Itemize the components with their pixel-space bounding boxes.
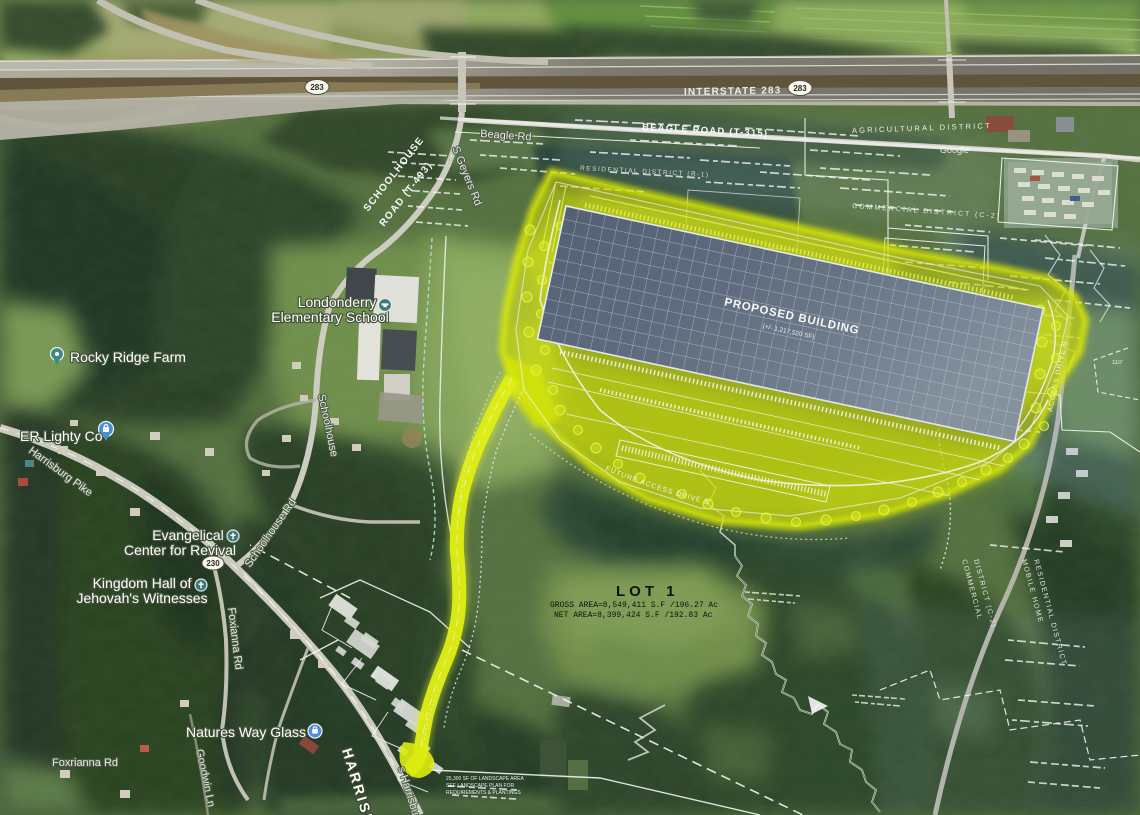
svg-text:REQUIREMENTS & PLANTINGS: REQUIREMENTS & PLANTINGS <box>446 790 521 796</box>
svg-text:Center for Revival: Center for Revival <box>124 542 236 558</box>
svg-text:230: 230 <box>206 559 220 568</box>
svg-text:Rocky Ridge Farm: Rocky Ridge Farm <box>70 349 186 365</box>
svg-text:Londonderry: Londonderry <box>298 294 377 310</box>
svg-text:INTERSTATE 283: INTERSTATE 283 <box>684 85 782 98</box>
svg-text:GROSS AREA=8,549,411 S.F /196.: GROSS AREA=8,549,411 S.F /196.27 Ac <box>550 601 718 610</box>
svg-text:Elementary School: Elementary School <box>271 309 389 325</box>
svg-text:SEE LANDSCAPE PLAN FOR: SEE LANDSCAPE PLAN FOR <box>446 783 514 789</box>
svg-text:Natures Way Glass: Natures Way Glass <box>186 724 306 740</box>
svg-text:LOT 1: LOT 1 <box>616 583 679 600</box>
svg-text:283: 283 <box>310 83 324 92</box>
svg-text:Kingdom Hall of: Kingdom Hall of <box>93 575 192 591</box>
svg-text:Evangelical: Evangelical <box>152 527 224 543</box>
svg-text:Jehovah's Witnesses: Jehovah's Witnesses <box>76 590 207 606</box>
svg-text:NET AREA=8,399,424 S.F /192.83: NET AREA=8,399,424 S.F /192.83 Ac <box>554 611 713 620</box>
svg-text:25,300 SF OF LANDSCAPE AREA: 25,300 SF OF LANDSCAPE AREA <box>446 776 524 782</box>
svg-text:283: 283 <box>793 84 807 93</box>
svg-text:Foxrianna Rd: Foxrianna Rd <box>52 757 118 769</box>
svg-text:Google: Google <box>940 145 969 155</box>
svg-text:110': 110' <box>1112 360 1123 366</box>
svg-text:ER Lighty Co: ER Lighty Co <box>20 428 103 444</box>
